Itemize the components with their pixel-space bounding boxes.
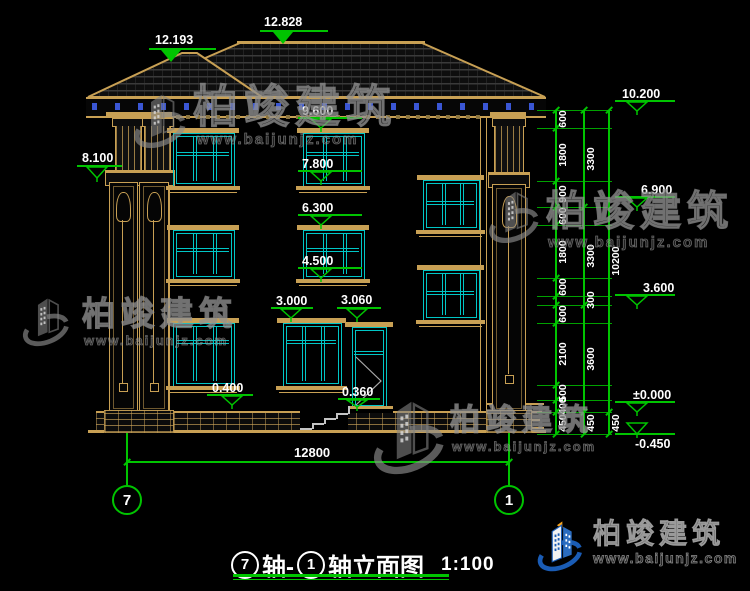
door-transom-line-1	[354, 351, 383, 352]
dim-tick-1-305	[552, 301, 559, 308]
ext-line-181	[537, 181, 612, 182]
window-stair-upper-mullion-2b	[463, 184, 464, 225]
window-3f-mid-mullion-2b	[346, 137, 347, 181]
window-2f-mid-frame	[303, 230, 365, 280]
ext-line-412	[537, 412, 612, 413]
elevation-triangle-3.060	[345, 308, 369, 323]
plinth-top-line-right	[393, 411, 486, 413]
window-2f-left-mullion-1a	[193, 234, 194, 274]
dim-tick-2-434	[580, 430, 587, 437]
title-axis-to: 1	[307, 556, 315, 573]
window-stair-lower-transom-a	[427, 291, 474, 292]
window-stair-upper-mullion-1a	[442, 184, 443, 225]
title-underline-thick	[233, 574, 449, 577]
window-stair-lower-mullion-2b	[463, 274, 464, 315]
window-stair-upper-frame	[423, 180, 480, 231]
elevation-triangle-±0.000	[625, 402, 649, 417]
elevation-label--0.450: -0.450	[635, 437, 670, 451]
window-1f-mid-mullion-2a	[321, 327, 322, 381]
window-3f-left-sill-line	[169, 192, 237, 193]
dim-tick-1-323	[552, 319, 559, 326]
window-1f-left-frame-inner	[176, 326, 232, 384]
keyhole-square-right	[505, 375, 514, 384]
dim-value-450-2-3: 450	[585, 414, 597, 432]
window-1f-mid-sill	[276, 386, 347, 390]
ext-line-323	[537, 323, 612, 324]
elevation-arm-3.060	[337, 307, 381, 309]
ext-line-434	[537, 434, 612, 435]
dim-value-450-3-1: 450	[610, 414, 622, 432]
window-stair-upper-mullion-1b	[445, 184, 446, 225]
keyhole-shield-2	[147, 192, 162, 222]
dim-tick-1-181	[552, 177, 559, 184]
left-fluted-shaft-2	[144, 126, 171, 170]
window-1f-left-lintel	[167, 318, 239, 323]
watermark-4: 柏竣建筑www.baijunjz.com	[370, 392, 750, 480]
window-3f-left-frame	[173, 133, 235, 187]
dim-chain-line-1	[555, 110, 557, 434]
dim-value-1800-1-4: 1800	[557, 240, 569, 263]
dim-value-offset-300: 300	[585, 291, 597, 309]
window-2f-left-mullion-2b	[216, 234, 217, 274]
bottom-dim-value: 12800	[294, 445, 330, 460]
ext-line-296	[537, 296, 612, 297]
window-3f-left-transom-a	[177, 152, 229, 153]
elevation-label-±0.000: ±0.000	[633, 388, 671, 402]
dim-value-10200-3-0: 10200	[610, 246, 622, 275]
window-stair-upper-sill-line	[419, 236, 482, 237]
axis-line-7	[126, 433, 128, 485]
entry-step-tread-3	[324, 418, 336, 420]
dim-value-3300-2-1: 3300	[585, 244, 597, 267]
window-stair-upper-lintel	[417, 175, 484, 180]
keyhole-shield-1	[116, 192, 131, 222]
door-swing-lines	[352, 355, 386, 407]
window-1f-left-frame	[173, 323, 235, 387]
elevation-arm-3.000	[271, 307, 313, 309]
elevation-label-4.500: 4.500	[302, 254, 333, 268]
elevation-label-3.600: 3.600	[643, 281, 674, 295]
window-1f-left-mullion-2b	[216, 327, 217, 381]
elevation-arm-3.600	[615, 294, 675, 296]
window-3f-left-frame-inner	[176, 136, 232, 184]
elevation-arm-6.900	[615, 196, 675, 198]
window-3f-left-mullion-1b	[196, 137, 197, 181]
dim-tick-1-296	[552, 292, 559, 299]
eave-dentils-row	[166, 115, 484, 119]
ext-line-225	[537, 225, 612, 226]
dim-chain-line-3	[608, 110, 610, 434]
window-3f-mid-mullion-1b	[326, 137, 327, 181]
entry-step-riser-3	[336, 413, 338, 419]
dim-value-3600-2-2: 3600	[585, 347, 597, 370]
keyhole-square-2	[150, 383, 159, 392]
keyhole-stem-2	[153, 220, 154, 383]
window-1f-left-sill	[166, 386, 240, 390]
window-1f-mid-frame	[283, 323, 342, 387]
wall-right-edge	[480, 117, 487, 413]
ext-line-207	[537, 207, 612, 208]
elevation-arm-±0.000	[615, 401, 675, 403]
dim-value-1800-1-1: 1800	[557, 143, 569, 166]
elevation-arm-4.500	[298, 267, 362, 269]
dim-tick-3-434	[605, 430, 612, 437]
dim-value-450-1-11: 450	[557, 414, 569, 432]
window-1f-mid-mullion-2b	[324, 327, 325, 381]
window-1f-mid-frame-inner	[286, 326, 339, 384]
dim-tick-1-278	[552, 274, 559, 281]
ext-line-385	[537, 385, 612, 386]
elevation-triangle-6.300	[309, 215, 333, 230]
window-1f-left-mullion-1a	[193, 327, 194, 381]
axis-line-1	[508, 433, 510, 485]
window-3f-mid-transom-b	[307, 155, 359, 156]
window-2f-left-lintel	[167, 225, 239, 230]
window-stair-lower-mullion-1a	[442, 274, 443, 315]
window-1f-mid-transom-a	[287, 340, 336, 341]
right-column-base	[486, 410, 532, 433]
elevation-arm--0.450	[615, 433, 675, 435]
axis-bubble-7-label: 7	[123, 492, 131, 509]
window-2f-mid-frame-inner	[306, 233, 362, 277]
elevation-triangle-3.600	[625, 295, 649, 310]
dim-tick-3-412	[605, 408, 612, 415]
dim-tick-1-412	[552, 408, 559, 415]
axis-bubble-1: 1	[494, 485, 524, 515]
entry-step-tread-1	[300, 428, 312, 430]
axis-bubble-1-label: 1	[505, 492, 513, 509]
window-stair-upper-transom-b	[427, 204, 474, 205]
watermark-url: www.baijunjz.com	[197, 132, 358, 147]
left-fluted-shaft-1	[115, 126, 142, 170]
elevation-label-0.400: 0.400	[212, 381, 243, 395]
footer-logo: 柏竣建筑 www.baijunjz.com	[531, 519, 738, 575]
window-2f-left-transom-b	[177, 251, 229, 252]
footer-logo-texts: 柏竣建筑 www.baijunjz.com	[593, 519, 738, 566]
window-1f-left-transom-a	[177, 340, 229, 341]
window-2f-left-frame	[173, 230, 235, 280]
window-2f-mid-lintel	[297, 225, 369, 230]
dim-value-500-1-9: 500	[557, 384, 569, 402]
window-3f-left-mullion-2a	[213, 137, 214, 181]
elevation-arm-6.300	[298, 214, 362, 216]
window-3f-mid-transom-a	[307, 152, 359, 153]
ext-line-278	[537, 278, 612, 279]
dim-value-600-1-5: 600	[557, 278, 569, 296]
window-3f-mid-sill	[296, 186, 370, 190]
dim-tick-1-400	[552, 396, 559, 403]
elevation-label-7.800: 7.800	[302, 157, 333, 171]
right-fluted-shaft	[494, 126, 524, 172]
cad-elevation-drawing: 12.19312.8288.1009.6007.8006.3004.5003.0…	[0, 0, 750, 591]
bottom-dim-line	[127, 461, 509, 463]
entry-step-riser-2	[324, 418, 326, 424]
window-3f-left-mullion-1a	[193, 137, 194, 181]
watermark-url: www.baijunjz.com	[452, 440, 596, 453]
window-1f-left-mullion-2a	[213, 327, 214, 381]
elevation-label-6.900: 6.900	[641, 183, 672, 197]
window-2f-left-sill	[166, 279, 240, 283]
elevation-triangle-7.800	[309, 171, 333, 186]
dim-tick-2-412	[580, 408, 587, 415]
left-column-base	[104, 410, 174, 433]
window-1f-mid-transom-b	[287, 343, 336, 344]
window-stair-upper-frame-inner	[426, 183, 477, 228]
entry-step-tread-2	[312, 423, 324, 425]
window-1f-mid-mullion-1a	[302, 327, 303, 381]
elevation-arm-0.400	[207, 394, 253, 396]
dim-tick-1-385	[552, 381, 559, 388]
window-2f-left-mullion-1b	[196, 234, 197, 274]
window-2f-mid-mullion-1b	[326, 234, 327, 274]
window-stair-lower-sill-line	[419, 326, 482, 327]
window-stair-upper-mullion-2a	[460, 184, 461, 225]
elevation-label-3.060: 3.060	[341, 293, 372, 307]
eave-brackets-row	[92, 103, 540, 110]
ext-line-400	[537, 400, 612, 401]
window-3f-mid-mullion-1a	[323, 137, 324, 181]
window-stair-lower-frame-inner	[426, 273, 477, 318]
window-stair-lower-sill	[416, 320, 485, 324]
window-stair-lower-mullion-2a	[460, 274, 461, 315]
footer-logo-icon	[531, 519, 589, 575]
keyhole-shield-right	[502, 196, 517, 228]
title-scale: 1:100	[441, 554, 495, 576]
window-3f-mid-mullion-2a	[343, 137, 344, 181]
elevation-triangle-4.500	[309, 268, 333, 283]
watermark-url: www.baijunjz.com	[548, 235, 709, 250]
window-1f-left-transom-b	[177, 343, 229, 344]
watermark-brand: 柏竣建筑	[546, 191, 734, 232]
elevation-triangle-3.000	[279, 308, 303, 323]
window-2f-mid-mullion-1a	[323, 234, 324, 274]
window-1f-mid-mullion-1b	[305, 327, 306, 381]
window-stair-lower-lintel	[417, 265, 484, 270]
footer-url: www.baijunjz.com	[593, 550, 738, 566]
window-stair-lower-mullion-1b	[445, 274, 446, 315]
keyhole-stem-1	[122, 220, 123, 383]
title-axis-from: 7	[241, 556, 249, 573]
window-2f-mid-mullion-2b	[346, 234, 347, 274]
window-1f-mid-sill-line	[279, 392, 344, 393]
footer-brand: 柏竣建筑	[593, 519, 738, 550]
entry-step-riser-1	[312, 423, 314, 429]
window-2f-mid-mullion-2a	[343, 234, 344, 274]
dim-value-2100-1-8: 2100	[557, 342, 569, 365]
watermark-2: 柏竣建筑www.baijunjz.com	[488, 183, 750, 262]
dim-tick-2-207	[580, 203, 587, 210]
dim-value-600-1-3: 600	[557, 207, 569, 225]
entry-step-riser-4	[348, 406, 350, 414]
window-stair-lower-transom-b	[427, 294, 474, 295]
ext-line-305	[537, 305, 612, 306]
elevation-arm-7.800	[298, 170, 362, 172]
window-3f-left-mullion-2b	[216, 137, 217, 181]
elevation-label-6.300: 6.300	[302, 201, 333, 215]
title-underline-thin	[233, 579, 449, 580]
elevation-triangle-0.400	[220, 395, 244, 410]
dim-value-900-1-2: 900	[557, 185, 569, 203]
keyhole-stem-right	[508, 226, 509, 374]
dim-tick-1-434	[552, 430, 559, 437]
window-stair-upper-sill	[416, 230, 485, 234]
window-2f-mid-sill-line	[299, 285, 367, 286]
elevation-label-8.100: 8.100	[82, 151, 113, 165]
dim-tick-1-207	[552, 203, 559, 210]
window-2f-left-sill-line	[169, 285, 237, 286]
window-2f-mid-sill	[296, 279, 370, 283]
window-stair-lower-frame	[423, 270, 480, 321]
window-3f-mid-frame	[303, 133, 365, 187]
watermark-logo-icon	[20, 292, 72, 350]
dim-tick-1-225	[552, 221, 559, 228]
window-3f-mid-sill-line	[299, 192, 367, 193]
window-3f-left-transom-b	[177, 155, 229, 156]
entry-step-tread-4	[336, 413, 348, 415]
axis-bubble-7: 7	[112, 485, 142, 515]
window-2f-mid-transom-b	[307, 251, 359, 252]
window-2f-left-mullion-2a	[213, 234, 214, 274]
elevation-label-3.000: 3.000	[276, 294, 307, 308]
window-3f-left-sill	[166, 186, 240, 190]
dim-chain-line-2	[583, 110, 585, 434]
window-1f-left-mullion-1b	[196, 327, 197, 381]
elevation-triangle--0.450	[625, 422, 649, 439]
elevation-triangle-6.900	[625, 197, 649, 212]
window-1f-mid-lintel	[277, 318, 346, 323]
dim-tick-2-305	[580, 301, 587, 308]
window-3f-mid-frame-inner	[306, 136, 362, 184]
window-2f-left-transom-a	[177, 248, 229, 249]
keyhole-square-1	[119, 383, 128, 392]
window-2f-mid-transom-a	[307, 248, 359, 249]
window-1f-left-sill-line	[169, 392, 237, 393]
dim-value-400-1-10: 400	[557, 397, 569, 415]
window-stair-upper-transom-a	[427, 201, 474, 202]
window-2f-left-frame-inner	[176, 233, 232, 277]
dim-value-3300-2-0: 3300	[585, 147, 597, 170]
dim-value-600-1-7: 600	[557, 305, 569, 323]
